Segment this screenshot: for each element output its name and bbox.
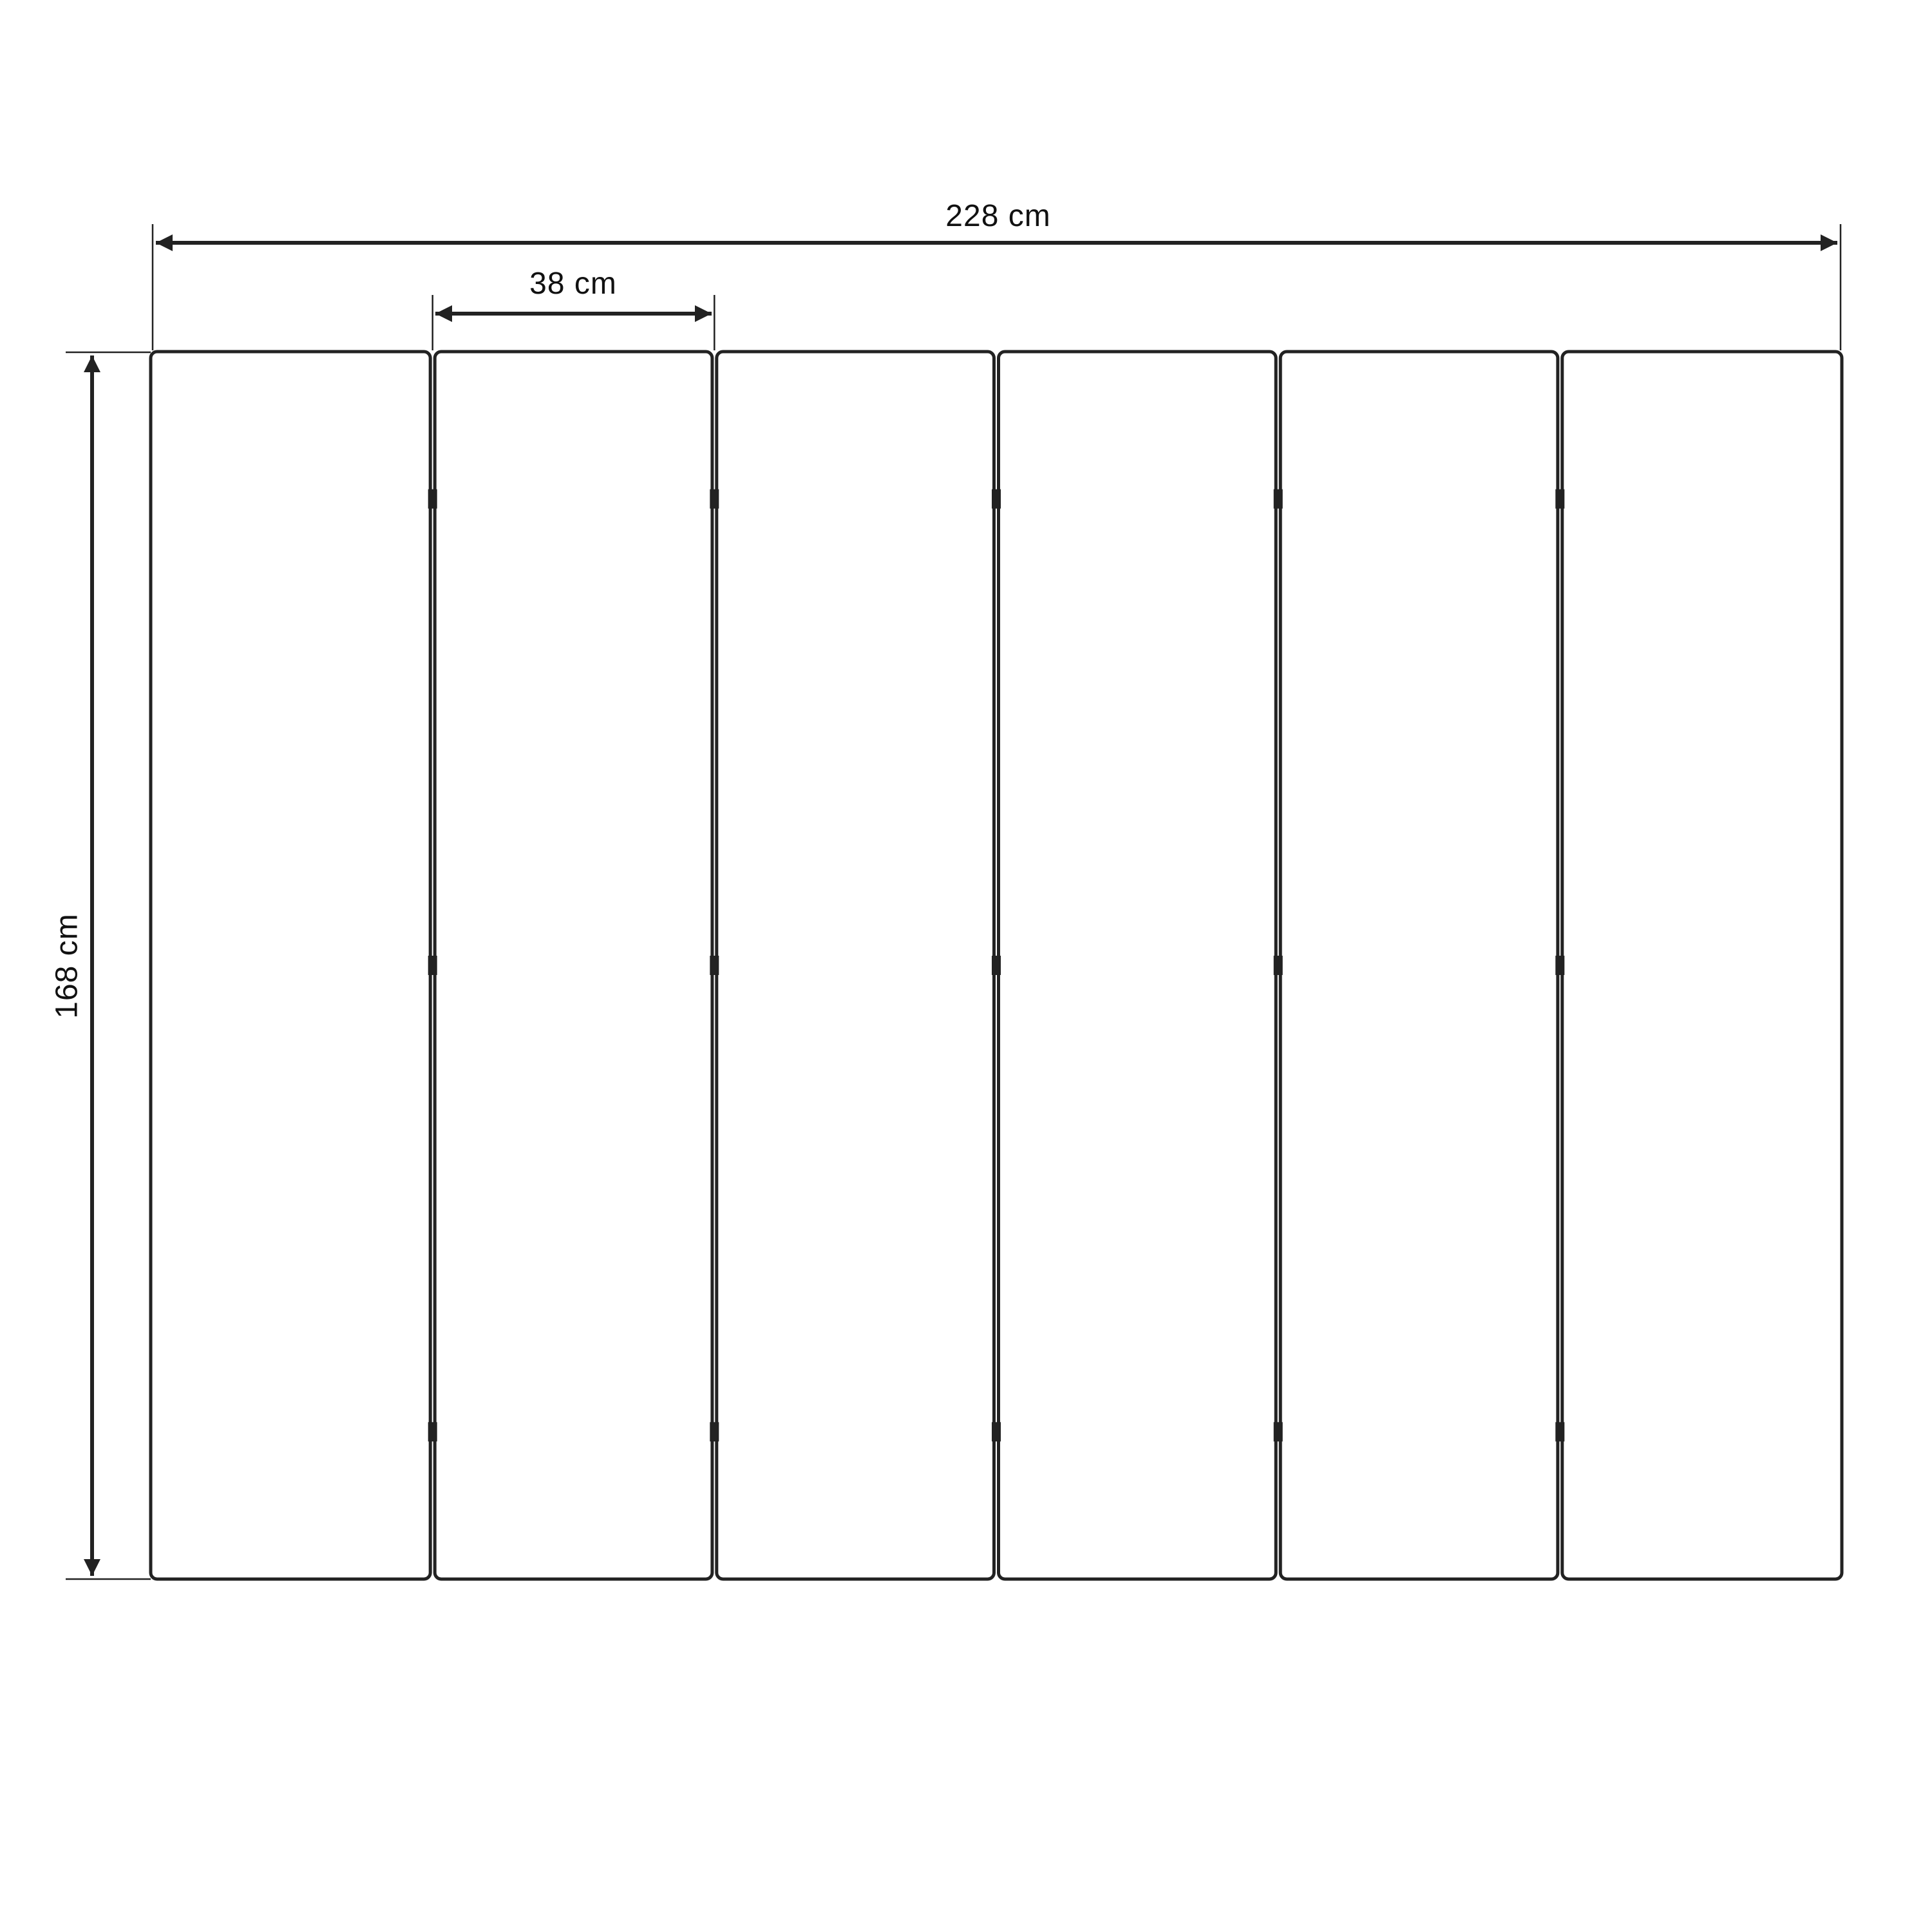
panel-width-dimension: 38 cm	[433, 267, 715, 350]
hinge	[992, 1422, 1001, 1441]
panel-5	[1280, 352, 1558, 1579]
hinge	[710, 956, 719, 975]
panel-4	[999, 352, 1276, 1579]
panel-1	[151, 352, 430, 1579]
panel-2	[435, 352, 712, 1579]
hinge	[710, 489, 719, 509]
hinge	[992, 956, 1001, 975]
hinge	[428, 956, 437, 975]
hinge	[992, 489, 1001, 509]
panel-screen-dimension-diagram: 228 cm 38 cm 168 cm	[0, 0, 1932, 1932]
hinge	[1555, 1422, 1564, 1441]
hinge	[710, 1422, 719, 1441]
panel-6	[1562, 352, 1842, 1579]
hinge	[1274, 956, 1283, 975]
hinge	[1274, 489, 1283, 509]
hinge	[428, 489, 437, 509]
total-width-dimension: 228 cm	[153, 199, 1841, 350]
hinge	[428, 1422, 437, 1441]
hinge	[1555, 489, 1564, 509]
total-width-label: 228 cm	[945, 199, 1050, 233]
height-label: 168 cm	[50, 913, 84, 1018]
panel-3	[717, 352, 994, 1579]
hinge	[1555, 956, 1564, 975]
hinge	[1274, 1422, 1283, 1441]
panel-width-label: 38 cm	[529, 267, 617, 301]
height-dimension: 168 cm	[50, 352, 151, 1579]
